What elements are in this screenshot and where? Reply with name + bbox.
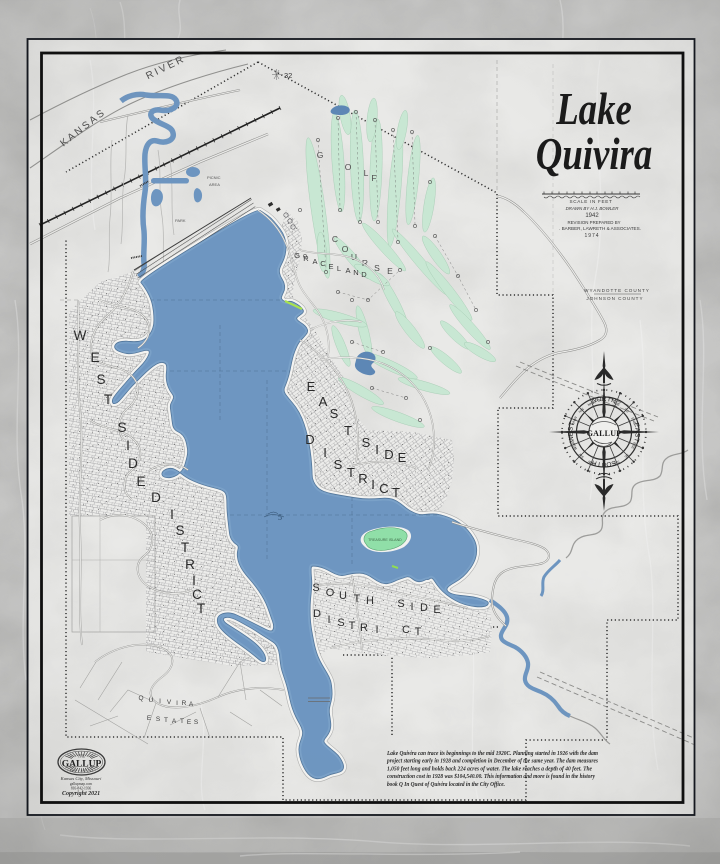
svg-text:MAP + ART CO.: MAP + ART CO.	[70, 769, 94, 773]
svg-text:project starting early in 1928: project starting early in 1928 and compl…	[386, 758, 598, 765]
svg-text:Copyright 2021: Copyright 2021	[62, 791, 100, 797]
svg-text:Lake: Lake	[555, 84, 631, 135]
svg-text:Lake Quivira can trace its beg: Lake Quivira can trace its beginnings to…	[386, 750, 598, 757]
svg-text:GALLUP: GALLUP	[587, 429, 622, 438]
svg-text:1974: 1974	[584, 233, 599, 239]
svg-text:816-842-1936: 816-842-1936	[71, 787, 92, 791]
svg-text:Quivira: Quivira	[536, 129, 653, 180]
svg-text:. BARBER, LAWRETH & ASSOCIATES: . BARBER, LAWRETH & ASSOCIATES.	[559, 226, 641, 231]
svg-text:1,050 feet long and holds back: 1,050 feet long and holds back 224 acres…	[387, 765, 592, 772]
svg-text:1942: 1942	[585, 213, 599, 219]
svg-text:construction cost in 1928 was: construction cost in 1928 was $104,540.0…	[387, 773, 595, 780]
svg-text:DRAWN BY H.J. BOWLER: DRAWN BY H.J. BOWLER	[566, 206, 620, 211]
svg-text:REVISION PREPARED BY: REVISION PREPARED BY	[567, 220, 620, 225]
svg-text:THE: THE	[78, 755, 86, 759]
svg-text:book Q In Quest of Quivira loc: book Q In Quest of Quivira located in th…	[387, 781, 505, 788]
svg-text:SCALE IN FEET: SCALE IN FEET	[569, 199, 612, 204]
svg-text:gallupmap.com: gallupmap.com	[70, 782, 92, 786]
